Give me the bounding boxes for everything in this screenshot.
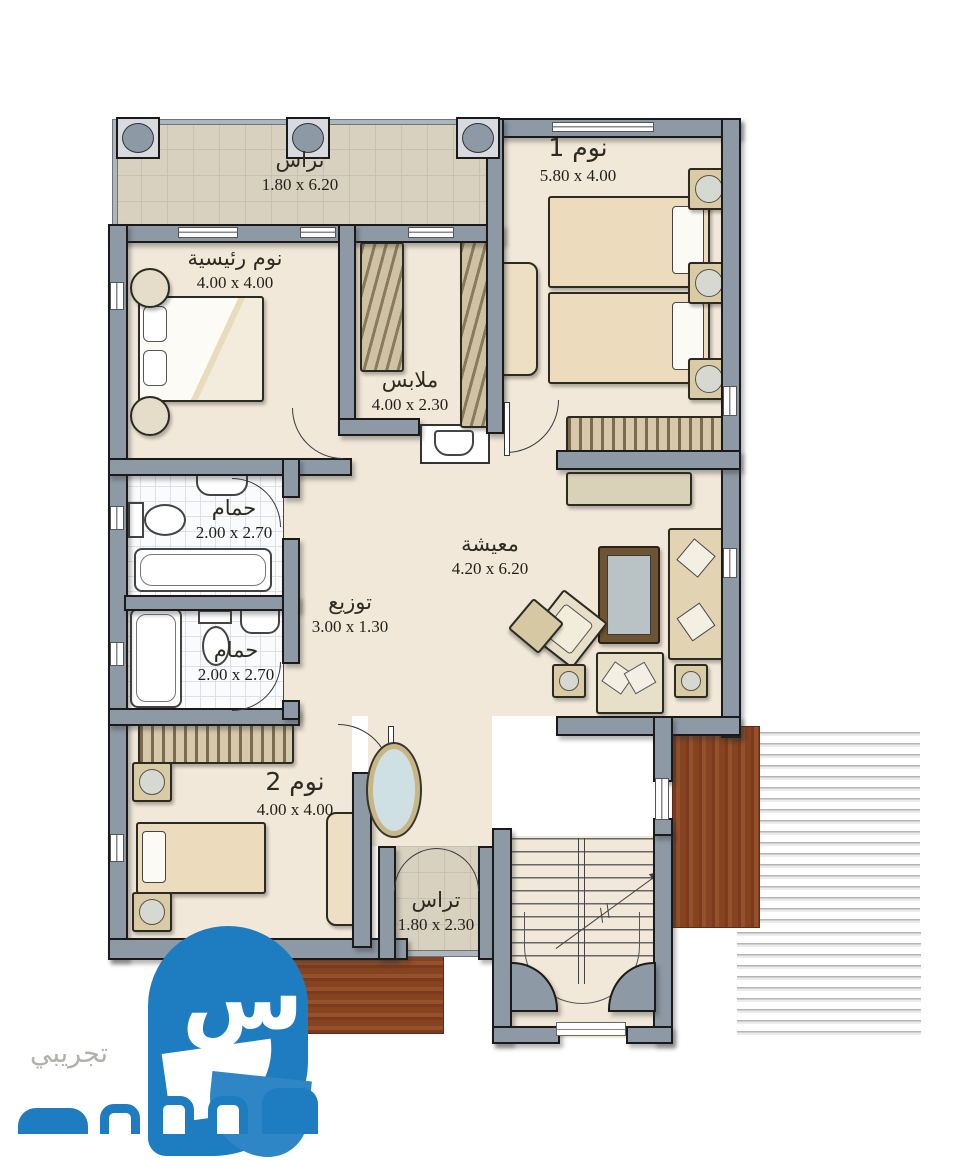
sofa-cushion [677,603,716,642]
wall-living-deck-b [653,818,673,836]
room-label-living: معيشة 4.20 x 6.20 [400,532,580,579]
side-table-plant [132,762,172,802]
wall-living-bottom [556,716,741,736]
wall-baths-right-c [282,700,300,720]
bookshelf [138,724,294,764]
wall-bedroom1-living [556,450,741,470]
wall-stair-left [492,828,512,1044]
wall-dressing-bottom-stub [338,418,420,436]
room-label-terrace-bottom: تراس 1.80 x 2.30 [378,888,494,935]
wardrobe [360,242,404,372]
window [110,506,124,530]
sofa [668,528,726,660]
wall-baths-right-a [282,458,300,498]
room-label-bathroom-2: حمام 2.00 x 2.70 [150,638,322,685]
plant-icon [139,769,165,795]
coffee-table [598,546,660,644]
sideboard [566,472,692,506]
double-bed [138,296,264,402]
plant-icon [681,671,701,691]
room-name: نوم رئيسية [130,246,340,270]
wall-bath2-bedroom2 [108,708,300,726]
wall-stair-right [653,828,673,1044]
wall-living-deck-a [653,716,673,782]
pergola-right [760,732,920,926]
room-dims: 3.00 x 1.30 [265,617,435,637]
table-glass [607,555,651,635]
bed-pillow [143,306,167,342]
single-bed [136,822,266,894]
column-circle-icon [122,123,154,153]
bed-pillow [142,831,166,883]
single-bed [548,196,710,288]
window [408,227,454,238]
wall-master-bath [108,458,352,476]
room-dims: 2.00 x 2.70 [150,665,322,685]
window [110,642,124,666]
room-name: معيشة [400,532,580,556]
bookshelf [566,416,726,454]
room-dims: 4.00 x 2.30 [330,395,490,415]
watermark-trial-label: تجريبي [30,1038,108,1069]
room-label-dressing: ملابس 4.00 x 2.30 [330,368,490,415]
wordmark-letter [18,1108,88,1134]
room-name: تراس [190,148,410,172]
window [110,834,124,862]
bathtub-inner [140,554,266,586]
room-dims: 4.00 x 4.00 [200,800,390,820]
room-dims: 5.80 x 4.00 [468,166,688,186]
room-dims: 1.80 x 2.30 [378,915,494,935]
bathtub [134,548,272,592]
window [655,778,669,820]
column [116,117,160,159]
plant-icon [139,899,165,925]
room-name: توزيع [265,590,435,614]
toilet [128,502,144,538]
room-dims: 1.80 x 6.20 [190,175,410,195]
room-name: حمام [150,638,322,662]
wall-stair-bottom-r [626,1026,673,1044]
room-name: نوم 1 [468,134,688,163]
room-dims: 4.20 x 6.20 [400,559,580,579]
toilet [198,610,232,624]
room-name: ملابس [330,368,490,392]
room-label-master-bedroom: نوم رئيسية 4.00 x 4.00 [130,246,340,293]
room-name: تراس [378,888,494,912]
pergola-bottom-right [737,932,921,1038]
sofa-cushion [676,538,715,577]
side-table-plant [674,664,708,698]
corridor-washbasin [434,430,474,456]
window [552,122,654,132]
room-dims: 4.00 x 4.00 [130,273,340,293]
door-leaf [504,402,510,456]
window [723,386,737,416]
armchair [596,652,664,714]
floor-plan-page: { "plan": { "title": "villa-first-floor-… [0,0,963,1134]
room-dims: 2.00 x 2.70 [148,523,320,543]
watermark-wordmark [12,1082,342,1134]
threshold-line [557,1029,625,1030]
single-bed [548,292,710,384]
room-name: نوم 2 [200,768,390,797]
wall-right-exterior [721,118,741,738]
wordmark-letter [262,1088,318,1134]
wood-deck-right [672,726,760,928]
side-table-plant [552,664,586,698]
round-nightstand [130,396,170,436]
room-label-bedroom-1: نوم 1 5.80 x 4.00 [468,134,688,186]
room-name: حمام [148,496,320,520]
dresser [500,262,538,376]
window [110,282,124,310]
logo-seen-glyph: س [182,954,282,1042]
room-label-bathroom-1: حمام 2.00 x 2.70 [148,496,320,543]
wall-stair-bottom-l [492,1026,560,1044]
window [723,548,737,578]
room-label-bedroom-2: نوم 2 4.00 x 4.00 [200,768,390,820]
entrance-threshold [556,1022,626,1036]
room-label-terrace-top: تراس 1.80 x 6.20 [190,148,410,195]
plant-icon [559,671,579,691]
wordmark-letter [100,1104,140,1134]
bed-pillow [143,350,167,386]
wordmark-letter [208,1096,248,1134]
wordmark-letter [154,1096,194,1134]
window [178,227,238,238]
window [300,227,336,238]
plant-icon [695,269,723,297]
room-label-hallway: توزيع 3.00 x 1.30 [265,590,435,637]
plant-icon [695,175,723,203]
armchair-cushion [624,662,657,695]
plant-icon [695,365,723,393]
